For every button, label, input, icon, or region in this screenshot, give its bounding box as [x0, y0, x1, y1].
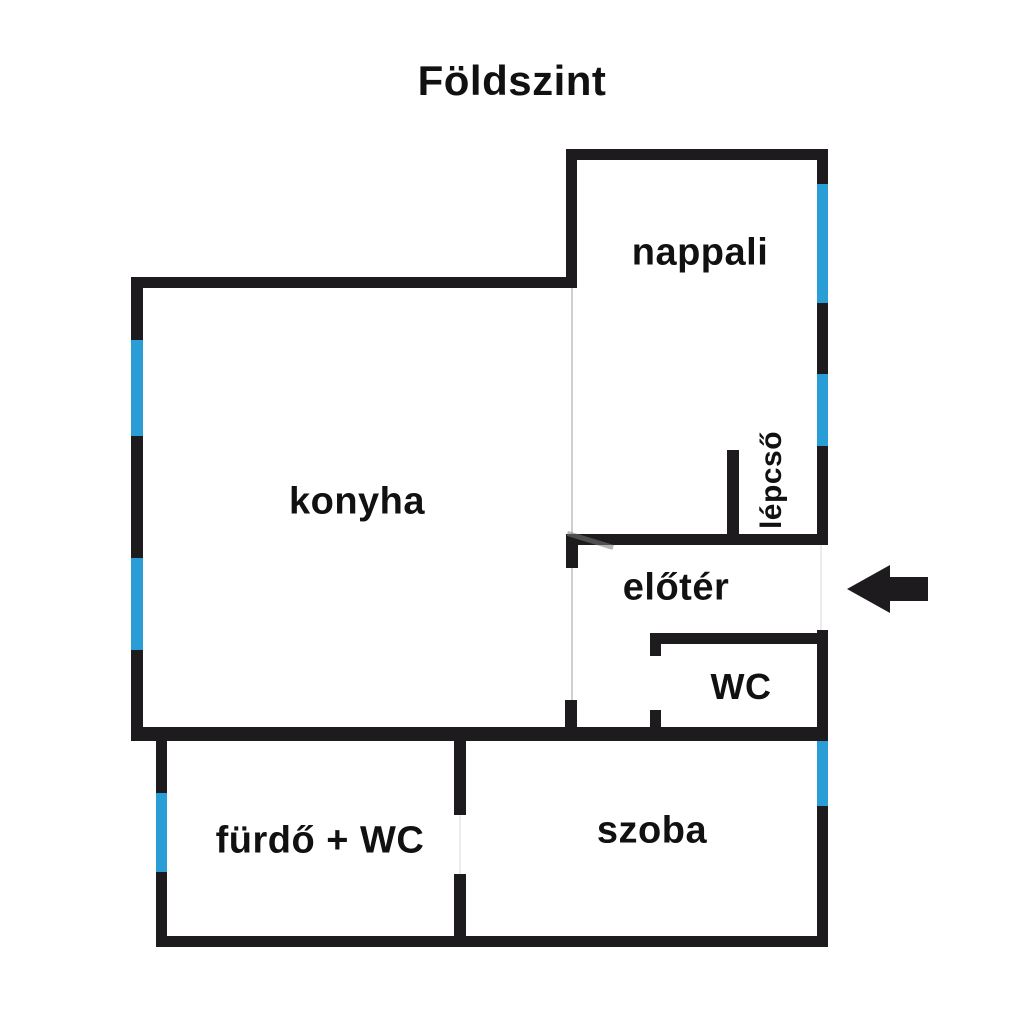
- entrance-arrow-head: [847, 565, 890, 613]
- wall-bottom: [156, 936, 828, 947]
- wall-nappali-top: [566, 149, 828, 160]
- room-label-lepcso: lépcső: [755, 431, 789, 529]
- wall-furdo-szoba-upper: [454, 741, 466, 815]
- divider-konyha-nappali: [571, 288, 573, 534]
- entrance-arrow-icon: [847, 565, 928, 613]
- wall-konyha-left-1: [131, 277, 143, 340]
- wall-right-1: [817, 149, 828, 184]
- entrance-door-line: [820, 545, 822, 630]
- window-furdo-left: [156, 793, 167, 872]
- wall-middle-horizontal: [131, 727, 828, 741]
- room-label-furdo-wc: fürdő + WC: [216, 820, 425, 863]
- window-szoba-right: [817, 740, 828, 806]
- wall-eloter-left-stub-upper: [566, 534, 578, 568]
- wall-nappali-left: [566, 149, 577, 287]
- furdo-szoba-door-line: [459, 815, 461, 874]
- divider-konyha-eloter: [571, 568, 573, 700]
- wall-lepcso-partition: [727, 450, 739, 545]
- room-label-wc: WC: [711, 666, 772, 708]
- wall-right-5: [817, 806, 828, 947]
- entrance-arrow-shaft: [889, 577, 928, 601]
- window-nappali-lower: [817, 374, 828, 446]
- room-label-szoba: szoba: [597, 810, 707, 853]
- wall-wc-top: [650, 633, 828, 644]
- room-label-eloter: előtér: [623, 567, 729, 610]
- wall-wc-left-upper: [650, 633, 661, 656]
- page-title: Földszint: [418, 57, 607, 105]
- wall-right-4: [817, 630, 828, 740]
- wall-konyha-top: [131, 277, 577, 288]
- floor-plan: Földszint nappali konyha: [0, 0, 1024, 1024]
- wall-furdo-left-1: [156, 741, 167, 793]
- window-konyha-upper: [131, 340, 143, 436]
- window-konyha-lower: [131, 558, 143, 650]
- room-label-nappali: nappali: [632, 232, 769, 275]
- window-nappali-upper: [817, 184, 828, 303]
- wall-konyha-left-2: [131, 436, 143, 558]
- room-label-konyha: konyha: [289, 481, 425, 524]
- wall-right-2: [817, 303, 828, 374]
- wall-right-3: [817, 446, 828, 545]
